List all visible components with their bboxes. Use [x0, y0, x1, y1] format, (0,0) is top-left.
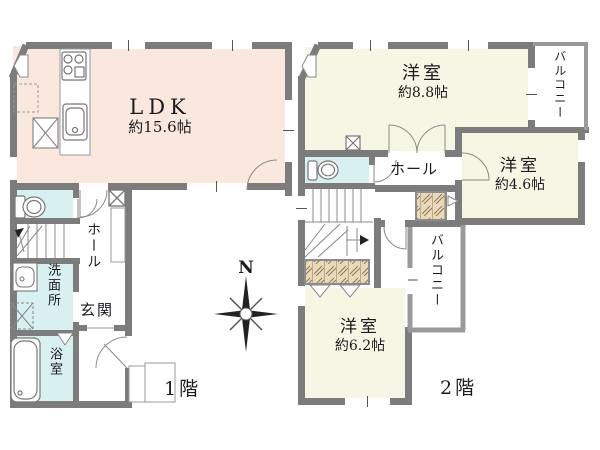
washbasin-icon: [13, 263, 37, 291]
bedroom-6-2-name: 洋室: [303, 318, 417, 338]
duct-box-2f: [346, 136, 360, 150]
compass-icon: [214, 276, 278, 352]
room-label-entrance: 玄関: [80, 302, 114, 319]
room-label-washroom: 洗面所: [44, 263, 59, 308]
corner-door-1f: [12, 45, 28, 78]
room-label-bathroom: 浴室: [46, 347, 61, 377]
room-label-hall-2f: ホール: [390, 161, 438, 178]
stairs-2f: [305, 189, 373, 257]
refrigerator-space: [33, 118, 58, 148]
toilet-icon-2f: [308, 161, 338, 180]
floor-plan: LDK 約15.6帖 ホール 玄関 洗面所 浴室 1階 洋室 約8.8帖 洋室 …: [0, 0, 600, 450]
stove-icon: [62, 52, 86, 80]
toilet-icon-1f: [15, 196, 45, 218]
floor1-label: 1階: [164, 379, 201, 401]
room-label-bedroom-8-8: 洋室 約8.8帖: [363, 64, 483, 101]
closet-hatch: [305, 260, 369, 284]
room-label-balcony-upper: バルコニー: [552, 50, 566, 120]
stairs-1f: [15, 224, 64, 258]
floor2-label: 2階: [440, 378, 477, 400]
bedroom-8-8-area: 約8.8帖: [363, 85, 483, 101]
compass-north-label: N: [236, 259, 256, 279]
bedroom-4-6-name: 洋室: [464, 157, 576, 177]
duct-box-1f: [109, 190, 125, 206]
room-label-hall-1f: ホール: [85, 222, 101, 270]
room-label-bedroom-4-6: 洋室 約4.6帖: [464, 157, 576, 193]
bathtub-icon: [11, 338, 40, 402]
sink-icon: [63, 104, 87, 140]
bedroom-4-6-area: 約4.6帖: [464, 177, 576, 193]
room-label-ldk: LDK 約15.6帖: [100, 95, 220, 136]
bedroom-6-2-area: 約6.2帖: [303, 338, 417, 354]
washing-machine-pan: [11, 303, 33, 329]
corner-door-2f: [302, 45, 318, 78]
shoe-cabinet: [111, 208, 125, 262]
cupboard-space: [14, 84, 38, 112]
ldk-name: LDK: [100, 95, 220, 119]
room-label-balcony-lower: バルコニー: [427, 233, 442, 308]
ldk-area: 約15.6帖: [100, 119, 220, 136]
room-label-bedroom-6-2: 洋室 約6.2帖: [303, 318, 417, 354]
closet-hatch: [416, 192, 446, 220]
bedroom-8-8-name: 洋室: [363, 64, 483, 85]
